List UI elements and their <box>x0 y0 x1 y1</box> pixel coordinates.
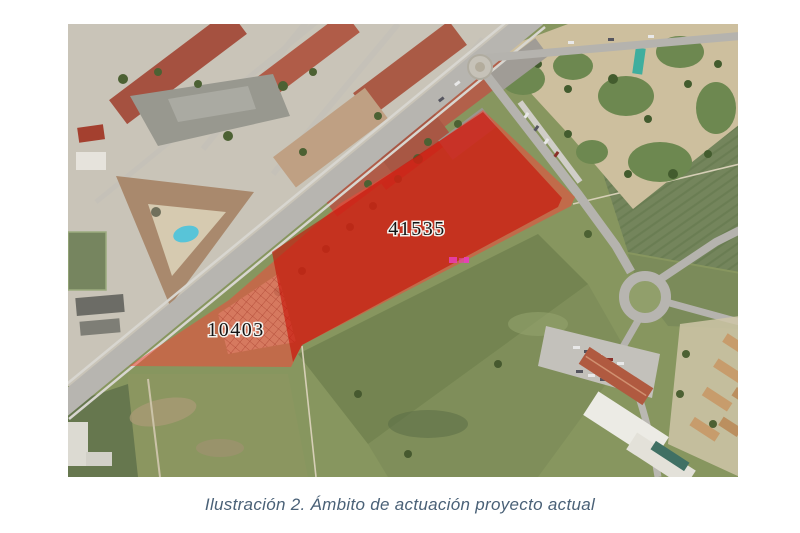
parcel-10403-label: 10403 <box>207 319 265 341</box>
fountain <box>151 207 161 217</box>
sports-court <box>68 232 106 290</box>
figure-caption: Ilustración 2. Ámbito de actuación proye… <box>0 495 800 515</box>
aerial-map: 41535 10403 <box>68 24 738 477</box>
document-page: 41535 10403 Ilustración 2. Ámbito de act… <box>0 0 800 533</box>
roundabout <box>624 276 666 318</box>
aerial-map-figure: 41535 10403 <box>68 24 738 477</box>
parcel-41535-label: 41535 <box>388 218 446 240</box>
